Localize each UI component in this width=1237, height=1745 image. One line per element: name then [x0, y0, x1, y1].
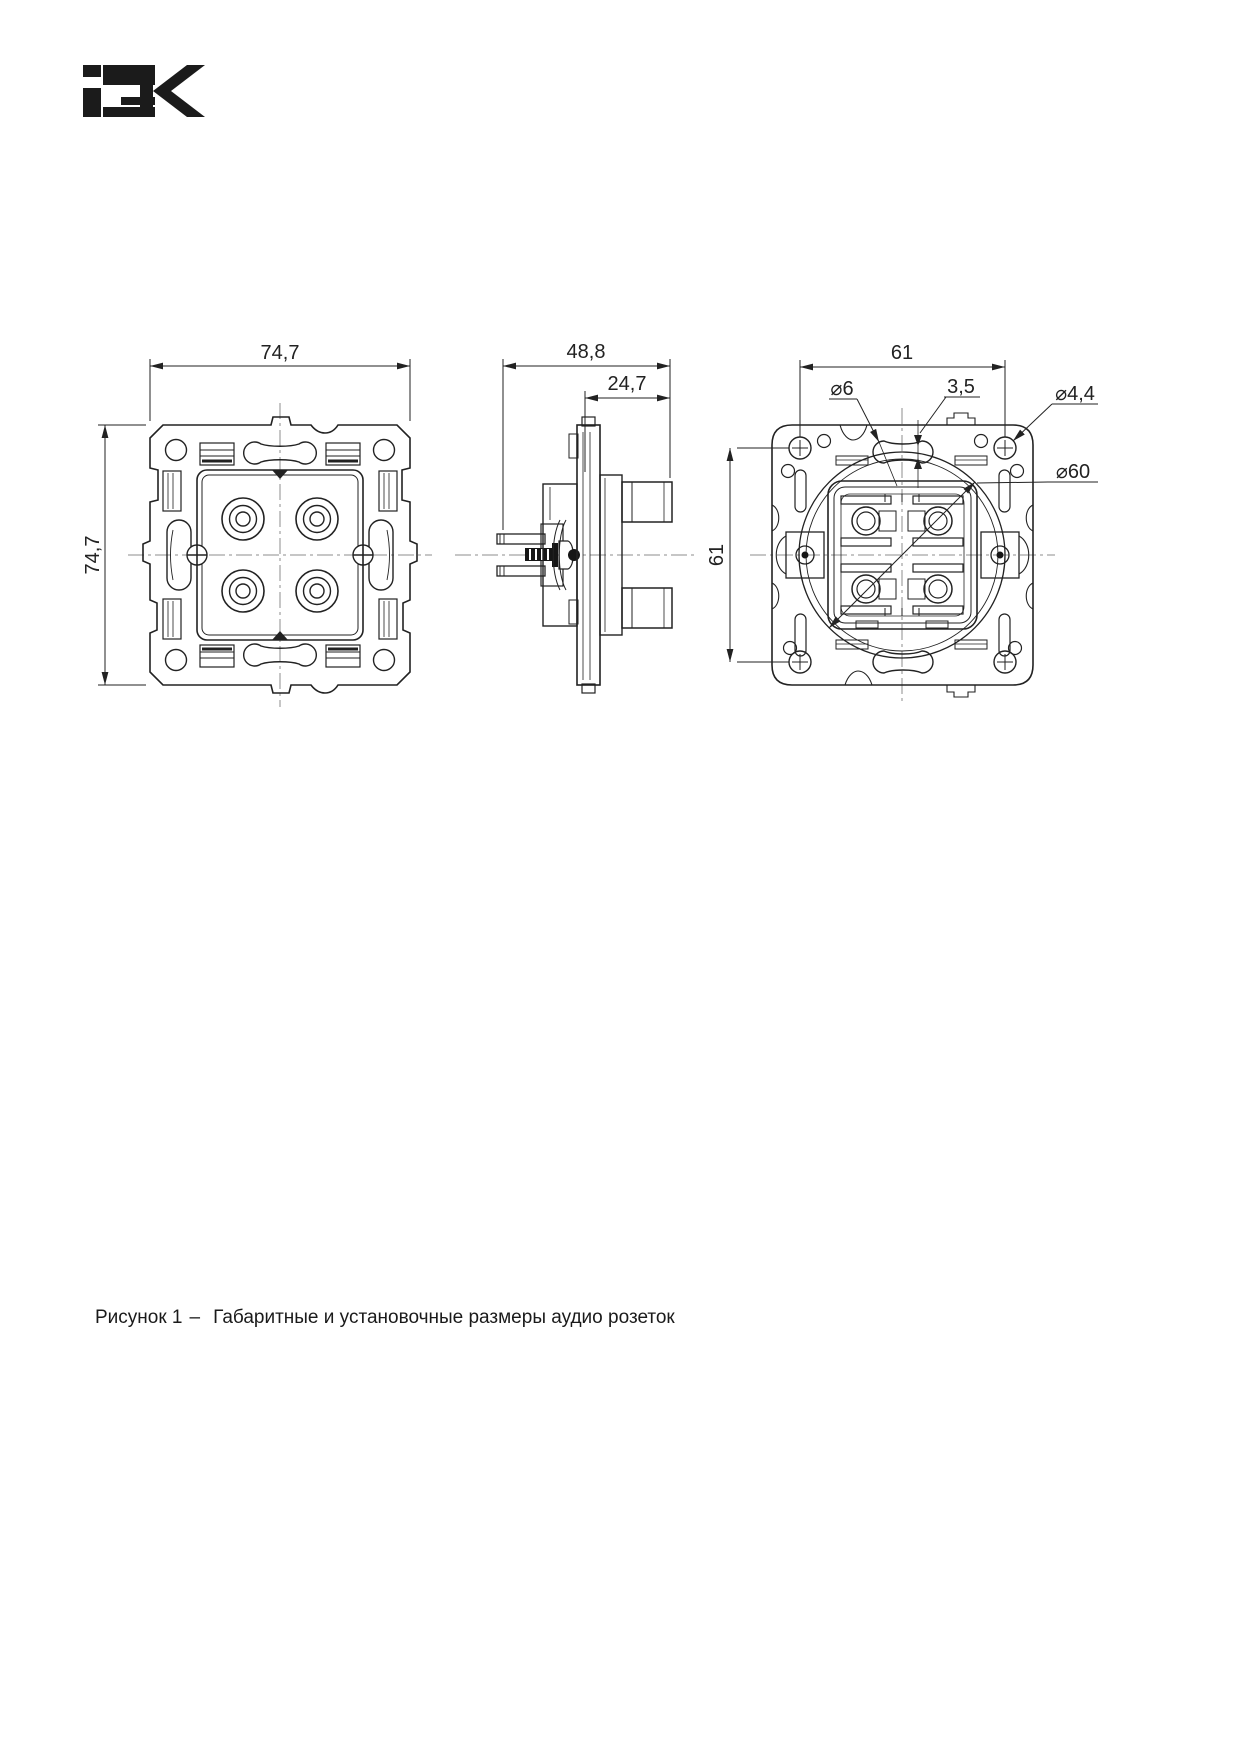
- side-depth-total-dimension: 48,8: [503, 341, 670, 530]
- side-rca-cylinder-bottom: [622, 588, 672, 628]
- rca-connector: [222, 498, 264, 540]
- figure-caption-label: Рисунок 1: [95, 1307, 183, 1328]
- screw-hole-diameter-label: ⌀4,4: [1055, 383, 1095, 405]
- slot-end-diameter-callout: ⌀6: [829, 378, 897, 486]
- support-ring-diameter-label: ⌀60: [1056, 461, 1090, 483]
- side-view: 48,8 24,7: [455, 341, 698, 693]
- terminal: [841, 496, 896, 546]
- rca-connector: [296, 570, 338, 612]
- side-rca-cylinder-top: [622, 482, 672, 522]
- back-mount-width-label: 61: [891, 342, 913, 364]
- terminal: [908, 564, 963, 614]
- front-width-label: 74,7: [261, 342, 300, 364]
- side-claw-screw: [525, 541, 580, 569]
- rca-connector: [296, 498, 338, 540]
- slot-width-label: 3,5: [947, 376, 975, 398]
- front-view: 74,7 74,7: [82, 342, 432, 707]
- figure-caption-separator: –: [190, 1307, 201, 1328]
- figure-caption: Рисунок 1–Габаритные и установочные разм…: [95, 1307, 675, 1329]
- figure-caption-text: Габаритные и установочные размеры аудио …: [213, 1307, 675, 1328]
- screw-hole-diameter-callout: ⌀4,4: [1013, 383, 1098, 441]
- technical-drawing: 74,7 74,7: [0, 0, 1237, 1745]
- back-view: 61 61 ⌀6 3,5: [706, 342, 1098, 704]
- rca-connector: [222, 570, 264, 612]
- back-mount-height-label: 61: [706, 544, 728, 566]
- side-depth-front-dimension: 24,7: [585, 373, 670, 472]
- front-height-label: 74,7: [82, 536, 104, 575]
- slot-end-diameter-label: ⌀6: [830, 378, 853, 400]
- side-depth-front-label: 24,7: [608, 373, 647, 395]
- document-page: 74,7 74,7: [0, 0, 1237, 1745]
- slot-width-dimension: 3,5: [914, 376, 980, 488]
- back-mounting-slots: [873, 441, 933, 673]
- side-depth-total-label: 48,8: [567, 341, 606, 363]
